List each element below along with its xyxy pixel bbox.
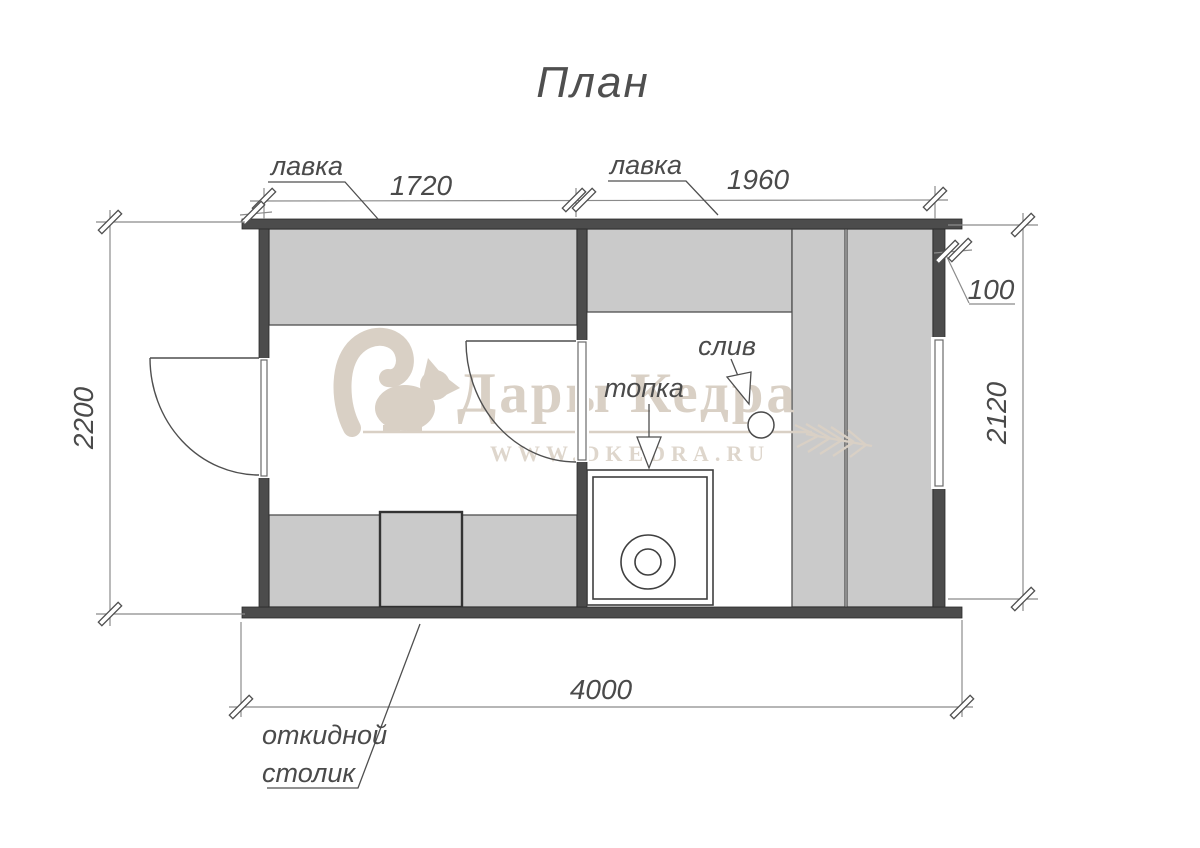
drain-circle xyxy=(748,412,774,438)
firebox-label: топка xyxy=(604,373,684,403)
dim-overall-depth: 2200 xyxy=(68,386,99,450)
bench-bottom-right xyxy=(462,515,577,607)
squirrel-logo xyxy=(343,337,461,431)
bench-top-left-room xyxy=(269,229,577,325)
stove xyxy=(587,470,713,605)
shelf-band-outer xyxy=(847,229,933,607)
dim-left-room-width: 1720 xyxy=(390,170,453,201)
stove-burner-inner xyxy=(635,549,661,575)
wall-bottom xyxy=(242,607,962,618)
squirrel-foot-back xyxy=(383,425,400,431)
bench-left-label: лавка xyxy=(269,151,343,181)
bench-right-leader xyxy=(608,181,718,215)
dim-wall-offset: 100 xyxy=(968,274,1015,305)
dim-line-top xyxy=(250,200,948,201)
squirrel-foot-front xyxy=(407,425,422,431)
floor-plan-page: Дары Кедра WWW.DKEDRA.RU xyxy=(0,0,1200,848)
dim-overall-width: 4000 xyxy=(570,674,633,705)
window-frame xyxy=(935,340,943,486)
bench-top-right-room xyxy=(587,229,792,312)
inner-door-frame xyxy=(578,342,586,460)
floor-plan-drawing: Дары Кедра WWW.DKEDRA.RU xyxy=(0,0,1200,848)
bench-right-label: лавка xyxy=(608,150,682,180)
folding-table-label-line2: столик xyxy=(262,758,356,788)
plan-title: План xyxy=(536,58,649,107)
dim-inner-depth: 2120 xyxy=(981,381,1012,445)
shelf-band-inner xyxy=(792,229,845,607)
dim-right-room-width: 1960 xyxy=(727,164,790,195)
wall-top xyxy=(242,219,962,229)
folding-table xyxy=(380,512,462,607)
bench-bottom-left xyxy=(269,515,380,607)
folding-table-label-line1: откидной xyxy=(262,720,387,750)
watermark-site: WWW.DKEDRA.RU xyxy=(490,441,770,466)
entry-door-swing-arc xyxy=(150,358,259,475)
entry-door-frame xyxy=(261,360,267,476)
drain-label: слив xyxy=(698,331,756,361)
